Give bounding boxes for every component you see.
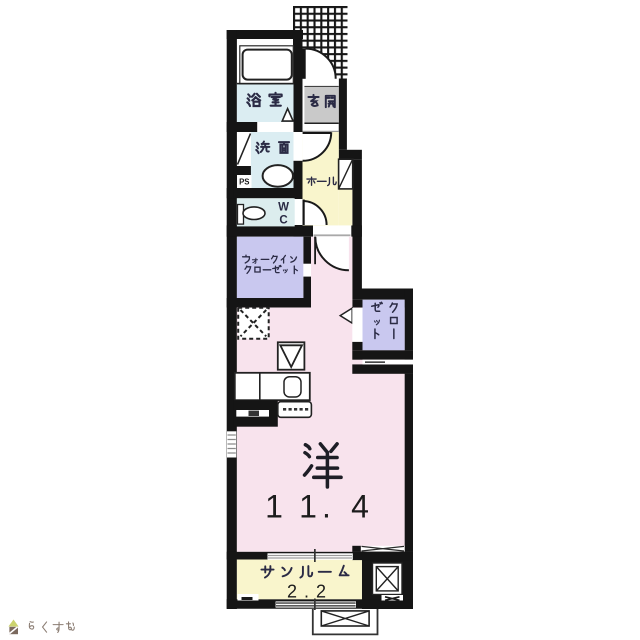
svg-text:2: 2: [316, 582, 326, 602]
svg-text:C: C: [279, 215, 287, 227]
svg-text:1: 1: [265, 489, 283, 525]
svg-text:1: 1: [299, 489, 317, 525]
svg-text:W: W: [278, 202, 289, 214]
svg-text:2: 2: [287, 582, 297, 602]
svg-text:.: .: [322, 489, 331, 525]
svg-text:4: 4: [351, 489, 369, 525]
svg-text:PS: PS: [239, 178, 249, 187]
svg-text:.: .: [304, 582, 309, 602]
